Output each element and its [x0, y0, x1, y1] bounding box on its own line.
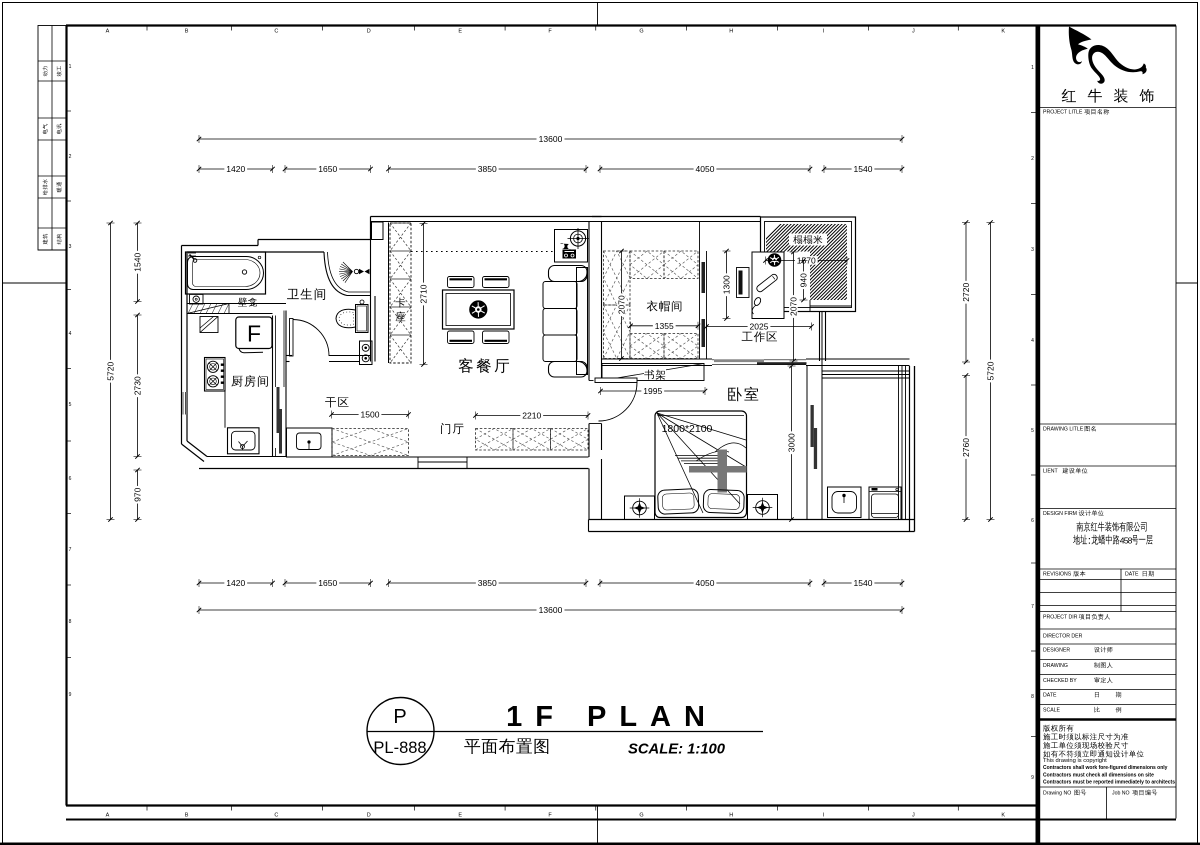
svg-text:1420: 1420 — [226, 578, 245, 588]
svg-text:2070: 2070 — [617, 295, 627, 314]
svg-text:1540: 1540 — [133, 253, 143, 272]
svg-text:D: D — [367, 813, 371, 819]
svg-text:4: 4 — [1031, 338, 1034, 344]
svg-text:SCALE: 1:100: SCALE: 1:100 — [628, 742, 726, 758]
svg-text:1650: 1650 — [318, 164, 337, 174]
svg-text:A: A — [106, 29, 110, 35]
svg-text:G: G — [639, 813, 643, 819]
svg-text:DATE: DATE — [1043, 693, 1057, 699]
svg-text:13600: 13600 — [539, 605, 563, 615]
svg-text:3850: 3850 — [478, 578, 497, 588]
svg-text:1300: 1300 — [722, 275, 732, 294]
svg-text:4050: 4050 — [696, 578, 715, 588]
svg-text:C: C — [274, 29, 278, 35]
svg-text:H: H — [729, 813, 733, 819]
svg-text:F: F — [247, 321, 261, 347]
svg-text:8: 8 — [69, 619, 72, 625]
svg-text:2710: 2710 — [419, 284, 429, 303]
svg-text:This drawing is copyright: This drawing is copyright — [1043, 758, 1107, 764]
svg-text:1: 1 — [69, 64, 72, 70]
svg-text:2720: 2720 — [961, 283, 971, 302]
svg-text:1355: 1355 — [655, 321, 674, 331]
svg-text:1540: 1540 — [854, 578, 873, 588]
svg-text:13600: 13600 — [539, 134, 563, 144]
svg-text:PROJECT DIR: PROJECT DIR — [1043, 614, 1078, 620]
svg-text:5720: 5720 — [986, 361, 996, 380]
svg-text:E: E — [458, 29, 462, 35]
svg-text:A: A — [106, 813, 110, 819]
svg-text:SCALE: SCALE — [1043, 708, 1061, 714]
svg-text:2730: 2730 — [133, 376, 143, 395]
svg-text:K: K — [1001, 29, 1005, 35]
svg-text:8: 8 — [1128, 535, 1133, 545]
svg-text:CHECKED BY: CHECKED BY — [1043, 678, 1077, 684]
svg-text:5: 5 — [69, 402, 72, 408]
svg-text:D: D — [367, 29, 371, 35]
svg-text:J: J — [912, 813, 915, 819]
svg-text:1650: 1650 — [318, 578, 337, 588]
svg-text:9: 9 — [1031, 775, 1034, 781]
svg-text:DESIGNER: DESIGNER — [1043, 647, 1070, 653]
svg-text:2025: 2025 — [750, 322, 769, 332]
svg-text:3850: 3850 — [478, 164, 497, 174]
svg-text:Contractors must be reported i: Contractors must be reported immediately… — [1043, 780, 1175, 786]
svg-text:6: 6 — [1031, 518, 1034, 524]
svg-text:5: 5 — [1031, 428, 1034, 434]
svg-text:Contractors must check all dim: Contractors must check all dimensions on… — [1043, 772, 1154, 778]
svg-text:E: E — [458, 813, 462, 819]
svg-text:DRAWING LITLE: DRAWING LITLE — [1043, 426, 1084, 432]
svg-text:G: G — [639, 29, 643, 35]
svg-text:4050: 4050 — [696, 164, 715, 174]
svg-text:P: P — [393, 706, 406, 728]
svg-text:Contractors shall work fore-fi: Contractors shall work fore-figured dime… — [1043, 765, 1168, 771]
svg-text:9: 9 — [69, 692, 72, 698]
svg-text:K: K — [1001, 813, 1005, 819]
svg-text:2: 2 — [1031, 156, 1034, 162]
svg-text:B: B — [185, 29, 189, 35]
svg-text:REVISIONS: REVISIONS — [1043, 571, 1072, 577]
svg-text:4: 4 — [69, 331, 72, 337]
svg-text:2760: 2760 — [961, 438, 971, 457]
svg-text:Job NO: Job NO — [1112, 791, 1130, 797]
svg-text:PL-888: PL-888 — [373, 739, 426, 757]
svg-text:6: 6 — [69, 476, 72, 482]
svg-text:DATE: DATE — [1125, 571, 1139, 577]
svg-text:J: J — [912, 29, 915, 35]
svg-text:B: B — [185, 813, 189, 819]
svg-text:3: 3 — [69, 244, 72, 250]
svg-text:7: 7 — [1031, 604, 1034, 610]
svg-text:3: 3 — [1031, 247, 1034, 253]
svg-text:C: C — [274, 813, 278, 819]
svg-text:LIENT: LIENT — [1043, 468, 1059, 474]
svg-text:970: 970 — [133, 487, 143, 501]
svg-text:DRAWING: DRAWING — [1043, 663, 1068, 669]
svg-text:DESIGN FIRM: DESIGN FIRM — [1043, 511, 1077, 517]
svg-text:1420: 1420 — [226, 164, 245, 174]
svg-text:1F PLAN: 1F PLAN — [506, 701, 718, 733]
svg-text:1995: 1995 — [643, 386, 662, 396]
svg-text:1540: 1540 — [854, 164, 873, 174]
svg-text:7: 7 — [69, 547, 72, 553]
svg-text:2210: 2210 — [522, 411, 541, 421]
svg-text:8: 8 — [1031, 694, 1034, 700]
svg-text:2: 2 — [69, 154, 72, 160]
svg-text:1: 1 — [1031, 65, 1034, 71]
svg-text:2070: 2070 — [789, 297, 799, 316]
svg-text:DIRECTOR DER: DIRECTOR DER — [1043, 633, 1083, 639]
svg-text:PROJECT LITLE: PROJECT LITLE — [1043, 109, 1083, 115]
svg-text:5720: 5720 — [106, 362, 116, 381]
svg-text:1800*2100: 1800*2100 — [662, 423, 713, 435]
svg-text:1500: 1500 — [361, 410, 380, 420]
svg-text:940: 940 — [799, 273, 809, 287]
svg-text:3000: 3000 — [787, 433, 797, 452]
svg-text:H: H — [729, 29, 733, 35]
svg-text:Drawing NO: Drawing NO — [1043, 791, 1071, 797]
